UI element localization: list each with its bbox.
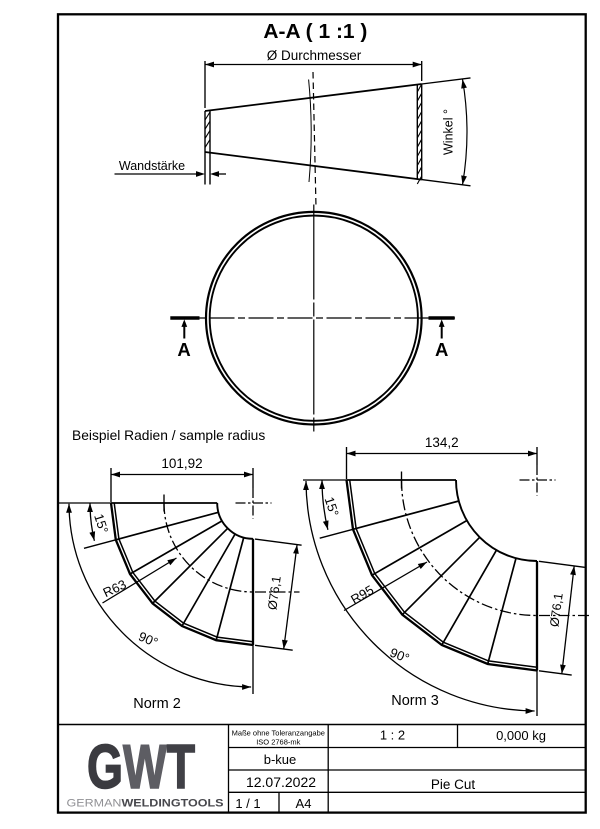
- svg-text:Beispiel Radien / sample radiu: Beispiel Radien / sample radius: [72, 428, 265, 443]
- svg-text:90°: 90°: [388, 645, 412, 666]
- svg-text:0,000 kg: 0,000 kg: [496, 728, 546, 743]
- svg-text:1 / 1: 1 / 1: [235, 796, 260, 811]
- svg-text:Norm 2: Norm 2: [133, 696, 181, 712]
- svg-text:101,92: 101,92: [161, 456, 202, 471]
- svg-text:GWT: GWT: [87, 733, 195, 802]
- svg-text:R95: R95: [348, 582, 376, 607]
- svg-text:A-A ( 1 :1 ): A-A ( 1 :1 ): [263, 21, 367, 43]
- svg-text:Norm 3: Norm 3: [391, 693, 439, 709]
- svg-text:Ø76,1: Ø76,1: [547, 592, 565, 628]
- svg-text:12.07.2022: 12.07.2022: [246, 774, 316, 790]
- svg-text:ISO 2768-mk: ISO 2768-mk: [256, 737, 300, 746]
- svg-text:Ø76,1: Ø76,1: [265, 575, 283, 611]
- svg-text:b-kue: b-kue: [264, 752, 297, 767]
- svg-text:1 : 2: 1 : 2: [380, 728, 405, 743]
- svg-text:90°: 90°: [136, 629, 160, 650]
- svg-text:GERMANWELDINGTOOLS: GERMANWELDINGTOOLS: [67, 798, 224, 810]
- svg-text:Wandstärke: Wandstärke: [119, 159, 185, 173]
- svg-text:Winkel °: Winkel °: [442, 109, 456, 155]
- svg-text:R63: R63: [101, 577, 129, 601]
- svg-text:A: A: [435, 339, 448, 360]
- svg-text:Ø Durchmesser: Ø Durchmesser: [267, 48, 362, 63]
- svg-text:134,2: 134,2: [425, 435, 459, 450]
- svg-text:A: A: [177, 339, 190, 360]
- svg-text:A4: A4: [296, 796, 312, 811]
- svg-text:Maße ohne Toleranzangabe: Maße ohne Toleranzangabe: [232, 729, 325, 738]
- svg-text:Pie Cut: Pie Cut: [431, 777, 476, 792]
